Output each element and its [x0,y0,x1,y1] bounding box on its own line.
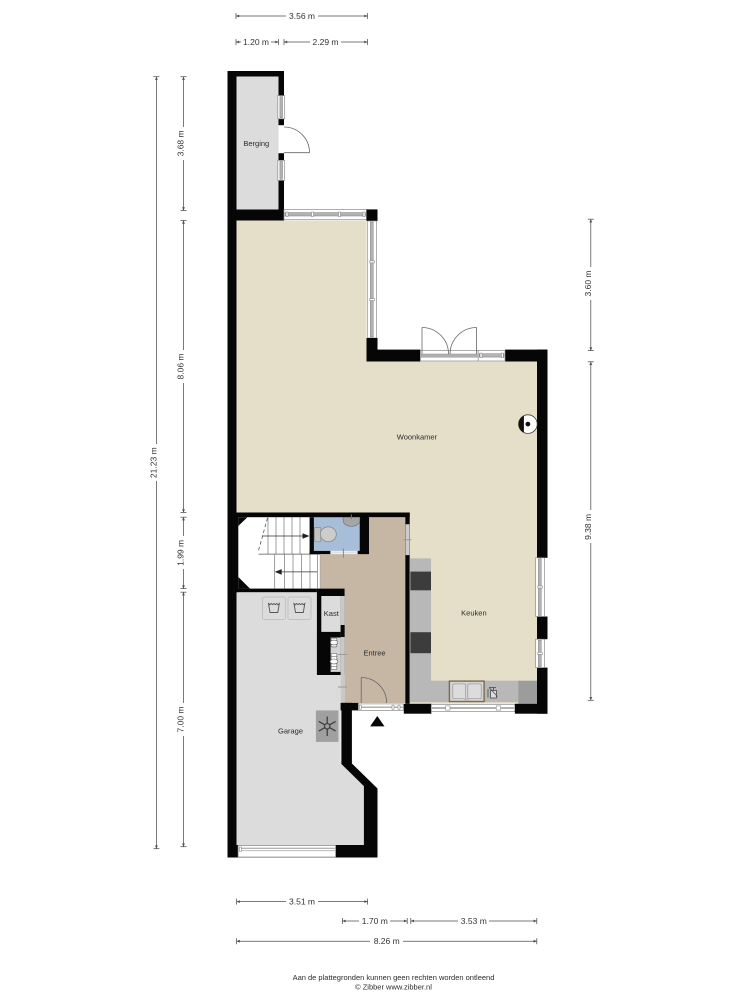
svg-text:Garage: Garage [278,727,303,736]
svg-text:3.53 m: 3.53 m [461,916,487,926]
svg-text:Entree: Entree [363,649,385,658]
svg-text:3.60 m: 3.60 m [583,271,593,297]
svg-text:3.56 m: 3.56 m [289,11,315,21]
svg-text:Kast: Kast [324,609,340,618]
svg-text:Woonkamer: Woonkamer [397,432,438,441]
svg-text:Keuken: Keuken [461,608,486,617]
svg-text:7.00 m: 7.00 m [176,707,186,733]
svg-text:8.26 m: 8.26 m [374,936,400,946]
svg-text:Aan de plattegronden kunnen ge: Aan de plattegronden kunnen geen rechten… [293,973,495,982]
svg-text:21.23 m: 21.23 m [148,447,158,478]
svg-text:1.20 m: 1.20 m [243,37,269,47]
svg-text:8.06 m: 8.06 m [176,354,186,380]
svg-text:3.51 m: 3.51 m [289,897,315,907]
svg-text:3.68 m: 3.68 m [176,130,186,156]
svg-text:1.99 m: 1.99 m [176,540,186,566]
svg-text:© Zibber www.zibber.nl: © Zibber www.zibber.nl [355,983,432,992]
svg-text:Berging: Berging [243,139,269,148]
svg-text:2.29 m: 2.29 m [313,37,339,47]
svg-text:9.38 m: 9.38 m [583,514,593,540]
svg-text:1.70 m: 1.70 m [362,916,388,926]
